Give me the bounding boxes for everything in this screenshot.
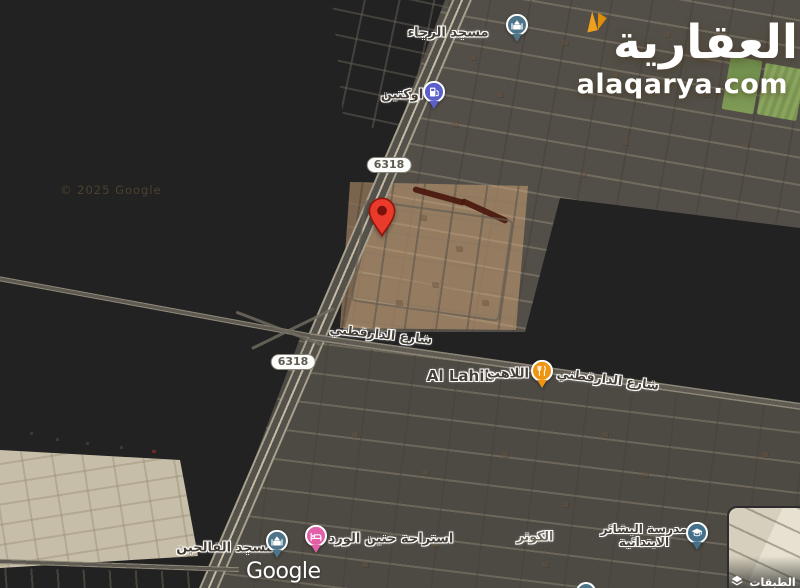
building [352, 432, 358, 437]
road-closed-segment [412, 186, 466, 206]
fuel-icon [428, 82, 440, 101]
desert-structure [120, 446, 123, 449]
building [562, 40, 568, 45]
building [742, 142, 748, 147]
road-daraqutni-east [309, 333, 800, 410]
road-daraqutni-west [0, 276, 313, 338]
route-shield-6318-south: 6318 [271, 354, 316, 370]
poi-label-octane[interactable]: اوكتين [381, 88, 423, 103]
building [562, 502, 568, 507]
route-shield-6318-north: 6318 [367, 157, 412, 173]
building [482, 300, 488, 305]
poi-marker-octane[interactable] [422, 81, 446, 113]
building [762, 452, 768, 457]
desert-structure [152, 450, 156, 453]
poi-label-al-lahib-en[interactable]: Al Lahib [427, 367, 495, 385]
building [542, 562, 548, 567]
road-crossroad-southwest [0, 559, 239, 572]
building [470, 55, 476, 60]
map-canvas[interactable]: 6318 6318 شارع الدارقطني شارع الدارقطني … [0, 0, 800, 588]
property-pin[interactable] [368, 197, 396, 241]
building [396, 300, 402, 305]
building [622, 140, 628, 145]
poi-label-masjid-rajaa[interactable]: مسجد الرجاء [407, 26, 488, 41]
poi-marker-istiraha[interactable] [304, 525, 328, 557]
restaurant-icon [536, 361, 548, 380]
layers-label: الطبقات [749, 576, 795, 588]
building [452, 122, 458, 127]
brand-domain: alaqarya.com [577, 69, 788, 100]
poi-marker-masjid-falihin[interactable] [265, 530, 289, 562]
mosque-icon [271, 531, 283, 550]
poi-label-istiraha[interactable]: استراحة حنين الورد [329, 532, 454, 547]
layers-icon [730, 574, 744, 588]
district-label-al-kawthar: الكوثر [517, 529, 554, 544]
poi-marker-masjid-rajaa[interactable] [505, 14, 529, 46]
building [497, 92, 503, 97]
poi-label-masjid-falihin[interactable]: مسجد الفالحين [176, 541, 274, 556]
poi-marker-school[interactable] [685, 522, 709, 554]
lodging-icon [310, 526, 322, 545]
poi-marker-al-lahib[interactable] [530, 360, 554, 392]
building [432, 282, 438, 287]
google-logo: Google [246, 559, 321, 584]
imagery-copyright: © 2025 Google [60, 183, 162, 197]
building [502, 452, 508, 457]
poi-marker-partial[interactable] [576, 582, 596, 588]
building [420, 215, 426, 220]
mosque-icon [511, 15, 523, 34]
poi-label-school[interactable]: مدرسة البشائر الابتدائية [601, 523, 688, 549]
building [642, 472, 648, 477]
desert-structure [86, 442, 89, 445]
building [362, 562, 368, 567]
poi-label-al-lahib-ar[interactable]: اللاهب [487, 367, 529, 382]
brand-book-icon [583, 8, 610, 39]
layers-button[interactable]: الطبقات [727, 506, 800, 588]
building [422, 470, 428, 475]
building [602, 432, 608, 437]
desert-structure [30, 432, 33, 435]
building [456, 246, 462, 251]
building [580, 172, 586, 177]
street-label-daraqutni-east: شارع الدارقطني [556, 365, 660, 392]
brand-logo-text: العقارية [613, 15, 798, 70]
school-icon [691, 523, 703, 542]
desert-structure [56, 438, 59, 441]
